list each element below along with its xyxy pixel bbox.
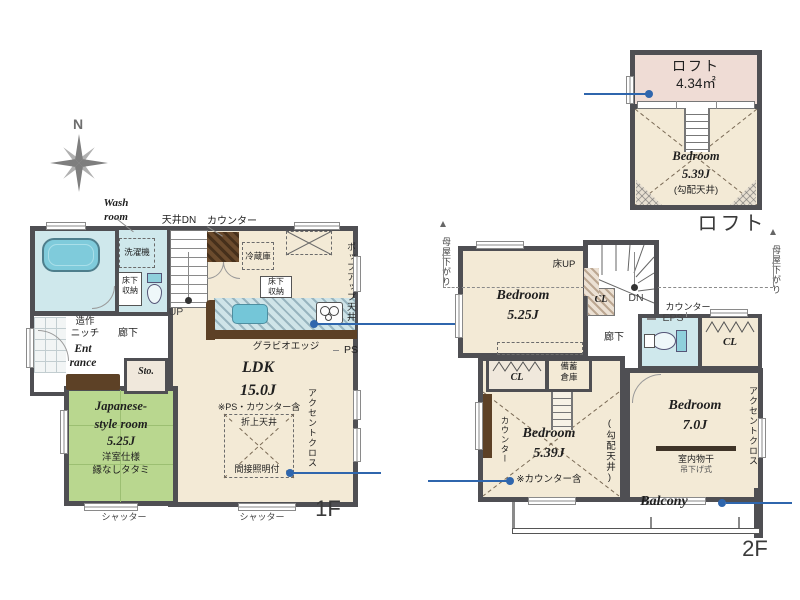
window bbox=[60, 410, 68, 454]
hanging-type-label: 吊下げ式 bbox=[670, 465, 722, 475]
loft-bedroom-label: Bedroom 5.39J bbox=[662, 148, 730, 183]
hanger-icon bbox=[493, 362, 541, 372]
closet-label: CL bbox=[502, 372, 532, 385]
toilet-sink-box bbox=[644, 334, 655, 348]
accent-cloth-label: アクセントクロス bbox=[303, 386, 316, 470]
window bbox=[84, 503, 138, 511]
loft-railing-tick bbox=[676, 101, 677, 109]
balcony-post bbox=[738, 517, 740, 528]
toilet-tank-icon bbox=[147, 273, 162, 283]
ldk-note-label: ※PS・カウンター含 bbox=[202, 402, 316, 413]
entrance-door-window bbox=[26, 328, 34, 368]
bedroom70-label: Bedroom 7.0J bbox=[640, 396, 750, 437]
loft-caption: ロフト bbox=[694, 212, 770, 237]
washer-label: 洗濯機 bbox=[120, 247, 154, 258]
counter2-tick bbox=[686, 312, 687, 317]
window bbox=[758, 418, 766, 458]
loft-name-label: ロフト bbox=[660, 58, 732, 76]
floor1-caption: 1F bbox=[304, 495, 352, 523]
loft-area-label: 4.34㎡ bbox=[660, 76, 732, 93]
storage-label: Sto. bbox=[128, 366, 164, 379]
counter-label: カウンター bbox=[204, 216, 260, 229]
moya-arrow-up bbox=[770, 226, 776, 235]
ldk-label: LDK 15.0J bbox=[208, 356, 308, 402]
callout-line bbox=[293, 472, 381, 474]
moya-dash-line bbox=[462, 287, 584, 288]
shutter-label: シャッター bbox=[230, 512, 294, 523]
callout-dot bbox=[645, 90, 653, 98]
folded-ceiling-label: 折上天井 bbox=[233, 417, 285, 428]
window bbox=[475, 402, 483, 450]
ceiling-dn-label: 天井DN bbox=[156, 215, 202, 228]
window bbox=[528, 497, 576, 505]
moya-dash-line bbox=[658, 287, 773, 288]
stairs-up-dot bbox=[185, 297, 192, 304]
moya-dash-line bbox=[443, 287, 459, 288]
ps-label: PS bbox=[338, 344, 364, 357]
balcony-rail bbox=[512, 528, 760, 534]
callout-dot bbox=[718, 499, 726, 507]
eps-label: EPS bbox=[656, 312, 690, 325]
fridge-label: 冷蔵庫 bbox=[242, 251, 274, 262]
stairs-direction-line bbox=[634, 252, 635, 286]
floor-plan-canvas: N 洗濯機 床下 収納 UP 冷蔵庫 bbox=[0, 0, 800, 600]
drying-bar bbox=[656, 446, 736, 451]
japanese-room-label: Japanese- style room 5.25J bbox=[66, 398, 176, 451]
window bbox=[353, 256, 361, 292]
toilet-tank-icon bbox=[676, 330, 687, 352]
loft-railing-tick bbox=[716, 101, 717, 109]
loft-ladder-icon bbox=[684, 108, 710, 152]
futon-outline bbox=[497, 342, 583, 355]
window bbox=[710, 309, 748, 317]
sloped-ceiling-label: (勾配天井) bbox=[600, 418, 614, 484]
stairs-direction-line bbox=[188, 252, 189, 300]
counter-hatch bbox=[207, 232, 239, 262]
hanger-icon bbox=[706, 322, 754, 334]
stock-storage-label: 備蓄 倉庫 bbox=[551, 361, 587, 382]
loft-note-label: (勾配天井) bbox=[662, 185, 730, 197]
balcony-post bbox=[650, 517, 652, 528]
balcony-label: Balcony bbox=[624, 493, 704, 511]
window bbox=[626, 76, 634, 104]
stove-icon bbox=[316, 302, 343, 324]
washroom-label: Wash room bbox=[90, 197, 142, 225]
window bbox=[353, 390, 361, 420]
window bbox=[476, 241, 524, 249]
accent-cloth2-label: アクセントクロス bbox=[744, 384, 757, 468]
indirect-lighting-label: 間接照明付 bbox=[228, 464, 286, 475]
floor2-caption: 2F bbox=[730, 535, 780, 563]
desk-counter-wood bbox=[483, 394, 492, 458]
callout-dot bbox=[506, 477, 514, 485]
hanging-cabinet-x-icon bbox=[286, 231, 332, 255]
counter-edge-wood bbox=[206, 330, 357, 339]
up-label: UP bbox=[162, 306, 190, 319]
indoor-drying-label: 室内物干 bbox=[660, 454, 732, 465]
bathtub-icon bbox=[42, 238, 100, 272]
window bbox=[294, 222, 340, 230]
floor-up-label: 床UP bbox=[546, 259, 582, 271]
balcony-post bbox=[512, 502, 515, 530]
counter-v-label: カウンター bbox=[497, 414, 509, 466]
shutter-label: シャッター bbox=[92, 512, 156, 523]
underfloor-storage-label: 床下 収納 bbox=[260, 277, 292, 297]
hallway-label: 廊下 bbox=[112, 328, 144, 341]
moya-lead-line bbox=[773, 248, 774, 287]
window bbox=[353, 428, 361, 462]
moya-arrow-up bbox=[440, 218, 446, 227]
kitchen-sink-icon bbox=[232, 304, 268, 324]
floor-up-hatch bbox=[584, 268, 599, 296]
counter2-label: カウンター bbox=[660, 302, 716, 313]
callout-line bbox=[584, 93, 650, 95]
niche-label: 造作 ニッチ bbox=[60, 316, 110, 340]
closet-label: CL bbox=[716, 336, 744, 350]
window bbox=[238, 503, 296, 511]
compass-north-label: N bbox=[66, 116, 90, 134]
gravio-edge-label: グラビオエッジ bbox=[238, 341, 334, 353]
window bbox=[455, 294, 463, 338]
moya-lead-line bbox=[443, 250, 444, 287]
stairs-dn-dot bbox=[631, 284, 638, 291]
toilet-bowl-icon bbox=[652, 332, 676, 350]
callout-line bbox=[428, 480, 510, 482]
entrance-step bbox=[66, 374, 120, 390]
underfloor-storage-label: 床下 収納 bbox=[118, 276, 142, 296]
jroom-note2-label: 縁なしタタミ bbox=[84, 465, 158, 477]
dn-label: DN bbox=[622, 292, 650, 305]
bedroom525-label: Bedroom 5.25J bbox=[466, 286, 580, 327]
hallway2-label: 廊下 bbox=[598, 332, 630, 345]
callout-line bbox=[726, 502, 792, 504]
eps-tick bbox=[647, 318, 656, 320]
jroom-note1-label: 洋室仕様 bbox=[94, 452, 148, 464]
window bbox=[46, 222, 86, 230]
compass-icon bbox=[50, 134, 108, 192]
